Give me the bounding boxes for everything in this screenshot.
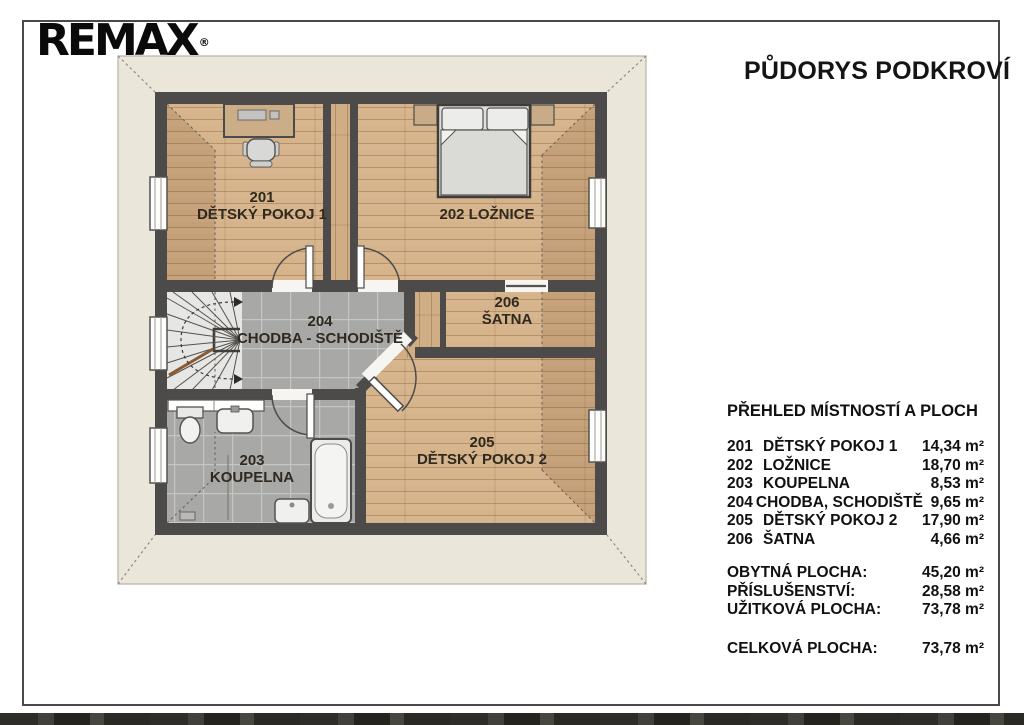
table-row: 203 KOUPELNA 8,53 m² [727,475,984,494]
page-title: PŮDORYS PODKROVÍ [744,57,994,86]
door-leaf-201 [306,246,313,288]
summary-row: UŽITKOVÁ PLOCHA: 73,78 m² [727,601,984,620]
room-label-201: 201DĚTSKÝ POKOJ 1 [197,189,327,223]
remax-logo: REMAX® [36,18,208,64]
room-label-204: 204CHODBA - SCHODIŠTĚ [237,313,403,347]
floor-drain [180,512,195,520]
window [150,177,167,230]
door-leaf-202 [357,246,364,288]
table-row: 201 DĚTSKÝ POKOJ 1 14,34 m² [727,438,984,457]
wall-core-wood [331,104,350,280]
room-label-203: 203KOUPELNA [210,452,294,486]
summary-row: OBYTNÁ PLOCHA: 45,20 m² [727,564,984,583]
bathtub-drain [328,503,334,509]
room-label-202: 202 LOŽNICE [439,206,534,223]
sink [217,409,253,433]
registered-mark: ® [199,36,210,49]
window [589,410,606,462]
pillow-right [487,108,528,130]
room-label-206: 206ŠATNA [482,294,533,328]
door-opening-203 [272,389,312,400]
nightstand-left [414,105,437,125]
floorplan-sheet: 201DĚTSKÝ POKOJ 1 202 LOŽNICE 204CHODBA … [0,0,1024,725]
toilet [180,417,200,443]
chair [247,139,275,161]
table-row: 204 CHODBA, SCHODIŠTĚ 9,65 m² [727,494,984,513]
area-summary: OBYTNÁ PLOCHA: 45,20 m² PŘÍSLUŠENSTVÍ: 2… [727,564,984,658]
table-row: 202 LOŽNICE 18,70 m² [727,457,984,476]
door-leaf-203 [307,394,314,438]
window [589,178,606,228]
room-legend: PŘEHLED MÍSTNOSTÍ A PLOCH 201 DĚTSKÝ POK… [727,402,984,550]
pillow-left [442,108,483,130]
total-area-row: CELKOVÁ PLOCHA: 73,78 m² [727,640,984,659]
legend-heading: PŘEHLED MÍSTNOSTÍ A PLOCH [727,402,984,421]
bottom-edge-artifact [0,713,1024,725]
room-label-205: 205DĚTSKÝ POKOJ 2 [417,434,547,468]
table-row: 206 ŠATNA 4,66 m² [727,531,984,550]
summary-row: PŘÍSLUŠENSTVÍ: 28,58 m² [727,583,984,602]
window [150,428,167,483]
staircase [167,292,243,390]
window [150,317,167,370]
nightstand-right [531,105,554,125]
table-row: 205 DĚTSKÝ POKOJ 2 17,90 m² [727,512,984,531]
